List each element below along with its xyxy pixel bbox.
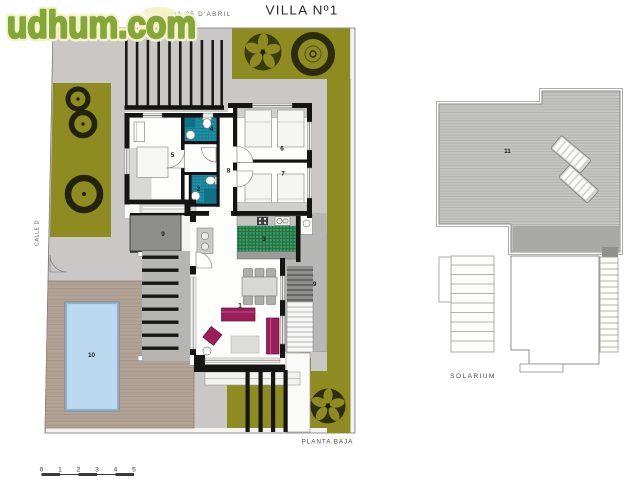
svg-text:8: 8 <box>227 168 231 175</box>
svg-text:5: 5 <box>132 467 136 474</box>
svg-text:4: 4 <box>114 467 118 474</box>
svg-text:2: 2 <box>77 467 81 474</box>
svg-text:1: 1 <box>238 303 242 310</box>
svg-text:VILLA Nº1: VILLA Nº1 <box>266 3 339 18</box>
svg-text:udhum.com: udhum.com <box>7 5 196 47</box>
svg-text:9: 9 <box>161 231 165 238</box>
svg-text:CALLE D: CALLE D <box>35 220 41 246</box>
svg-text:SOLARIUM: SOLARIUM <box>450 373 496 380</box>
svg-text:3: 3 <box>262 236 266 243</box>
svg-text:10: 10 <box>88 352 96 359</box>
svg-text:PLANTA BAJA: PLANTA BAJA <box>302 439 354 446</box>
svg-text:5: 5 <box>171 152 175 159</box>
svg-text:6: 6 <box>280 146 284 153</box>
svg-text:4: 4 <box>210 126 214 133</box>
svg-text:7: 7 <box>281 171 285 178</box>
svg-text:3: 3 <box>95 467 99 474</box>
svg-text:1: 1 <box>58 467 62 474</box>
svg-text:0: 0 <box>40 467 44 474</box>
svg-text:11: 11 <box>504 148 511 155</box>
svg-text:2: 2 <box>197 186 201 193</box>
svg-text:9: 9 <box>313 281 317 288</box>
